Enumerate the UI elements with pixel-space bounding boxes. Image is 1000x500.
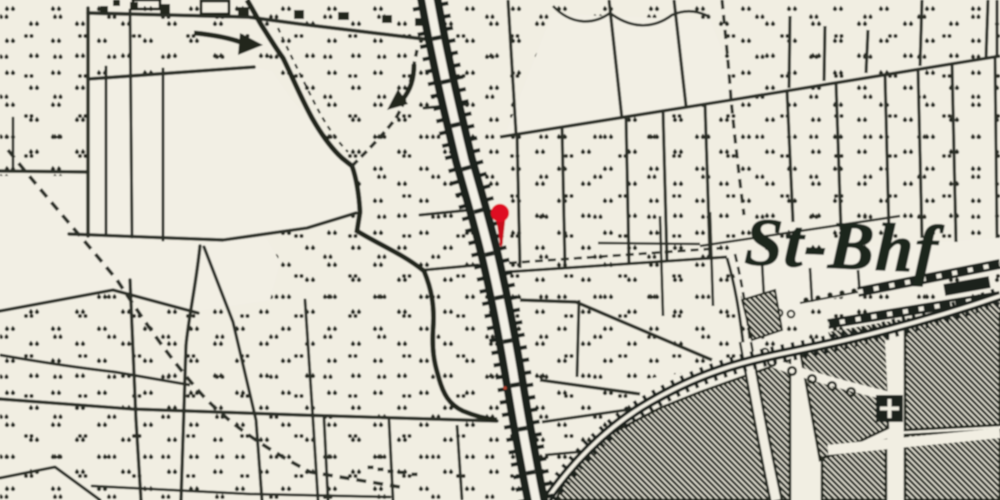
svg-text:St-Bhf: St-Bhf (743, 203, 945, 288)
